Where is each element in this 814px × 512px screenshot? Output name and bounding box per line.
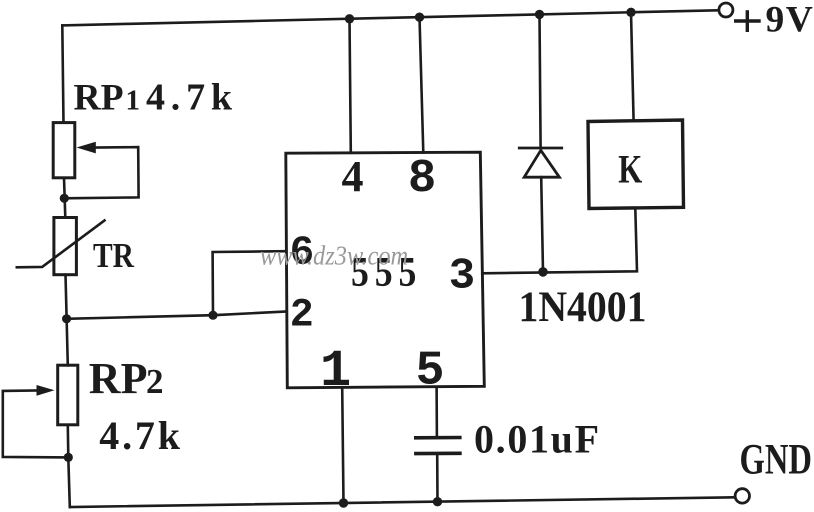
svg-text:RP: RP [89, 354, 148, 403]
svg-text:1: 1 [126, 84, 141, 116]
svg-text:TR: TR [93, 236, 135, 275]
svg-text:0.01uF: 0.01uF [474, 416, 599, 461]
svg-text:3: 3 [449, 252, 475, 302]
svg-text:www.dz3w.com: www.dz3w.com [260, 241, 408, 271]
svg-text:2: 2 [146, 362, 164, 401]
svg-text:2: 2 [290, 293, 314, 338]
svg-text:9V: 9V [766, 0, 814, 41]
svg-text:4: 4 [342, 152, 364, 201]
svg-text:5: 5 [416, 345, 445, 399]
svg-text:RP: RP [74, 77, 124, 118]
svg-text:GND: GND [740, 435, 813, 483]
svg-text:4.7k: 4.7k [146, 76, 233, 118]
svg-text:1: 1 [320, 342, 351, 401]
svg-text:1N4001: 1N4001 [519, 284, 647, 331]
svg-text:8: 8 [408, 153, 436, 206]
svg-text:K: K [618, 147, 642, 192]
svg-text:4.7k: 4.7k [99, 413, 180, 458]
